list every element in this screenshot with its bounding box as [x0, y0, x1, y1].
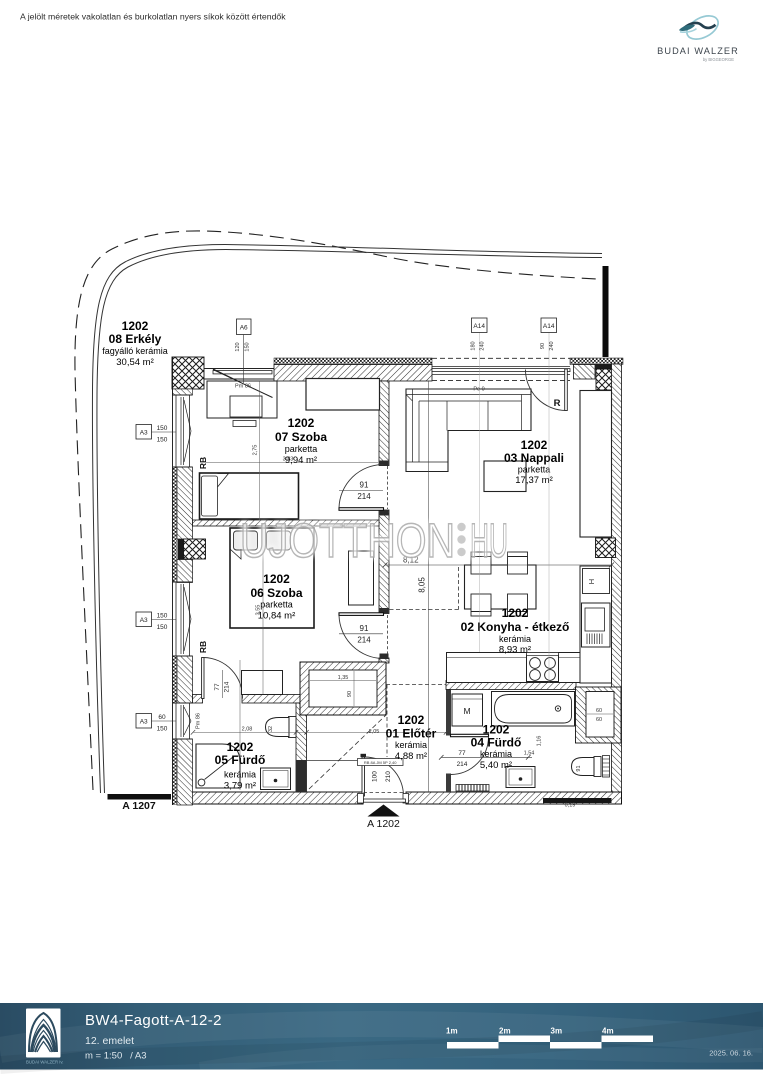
svg-text:kerámia: kerámia — [395, 740, 427, 750]
svg-text:A14: A14 — [473, 323, 485, 330]
svg-text:R: R — [554, 398, 561, 409]
svg-text:A jelölt méretek vakolatlan és: A jelölt méretek vakolatlan és burkolatl… — [20, 12, 286, 22]
svg-text:1202: 1202 — [288, 416, 315, 430]
svg-text:150: 150 — [245, 342, 251, 351]
svg-text:BUDAI WALZER: BUDAI WALZER — [657, 46, 739, 56]
svg-text:91: 91 — [360, 624, 369, 633]
svg-text:Pe 0: Pe 0 — [473, 387, 484, 393]
svg-text:77: 77 — [214, 683, 221, 691]
svg-text:1,16: 1,16 — [537, 736, 543, 747]
svg-text:4m: 4m — [602, 1027, 614, 1036]
svg-text:A3: A3 — [140, 719, 148, 726]
svg-text:214: 214 — [457, 761, 468, 768]
svg-text:m = 1:50 / A3: m = 1:50 / A3 — [85, 1051, 147, 1062]
svg-text:A14: A14 — [543, 323, 555, 330]
svg-text:180: 180 — [471, 341, 477, 350]
svg-text:1m: 1m — [446, 1027, 458, 1036]
svg-text:1202: 1202 — [521, 438, 548, 452]
svg-text:UJOTTHON: UJOTTHON — [240, 515, 455, 568]
svg-text:150: 150 — [157, 624, 168, 631]
svg-text:fagyálló kerámia: fagyálló kerámia — [102, 346, 168, 356]
svg-text:04 Fürdő: 04 Fürdő — [471, 736, 522, 750]
svg-text:parketta: parketta — [260, 600, 293, 610]
svg-text:60: 60 — [596, 708, 602, 714]
svg-text:100: 100 — [372, 771, 379, 782]
svg-text:Pm 86: Pm 86 — [235, 384, 251, 390]
svg-text:08 Erkély: 08 Erkély — [109, 332, 162, 346]
svg-text:32: 32 — [268, 726, 274, 732]
svg-text:9,94 m²: 9,94 m² — [285, 455, 317, 466]
svg-text:91: 91 — [576, 765, 582, 771]
svg-text:8,05: 8,05 — [418, 577, 427, 593]
svg-text:A3: A3 — [140, 617, 148, 624]
svg-text:17,37 m²: 17,37 m² — [515, 475, 553, 486]
svg-text:01 Előtér: 01 Előtér — [386, 727, 437, 741]
svg-text:06 Szoba: 06 Szoba — [250, 586, 302, 600]
svg-text:BUDAI WALZER Iv.: BUDAI WALZER Iv. — [26, 1060, 63, 1065]
svg-text:H: H — [587, 579, 596, 584]
svg-text:Pm 86: Pm 86 — [196, 713, 202, 729]
svg-text:240: 240 — [549, 341, 555, 350]
svg-text:1,35: 1,35 — [338, 675, 349, 681]
svg-text:M: M — [463, 706, 470, 716]
svg-text:RB: RB — [198, 641, 208, 653]
svg-text:60: 60 — [596, 717, 602, 723]
svg-text:214: 214 — [357, 492, 371, 501]
svg-text:RB 8A JM 5P 2,40: RB 8A JM 5P 2,40 — [364, 760, 397, 765]
svg-text:4,88 m²: 4,88 m² — [395, 751, 427, 762]
svg-text:parketta: parketta — [285, 444, 318, 454]
svg-text:2m: 2m — [499, 1027, 511, 1036]
svg-text:5,40 m²: 5,40 m² — [480, 760, 512, 771]
svg-text:A 1202: A 1202 — [367, 818, 400, 830]
svg-text:90: 90 — [347, 691, 353, 697]
svg-text:77: 77 — [458, 750, 466, 757]
svg-text:150: 150 — [157, 437, 168, 444]
svg-text:1202: 1202 — [263, 572, 290, 586]
svg-text:2,08: 2,08 — [242, 727, 253, 733]
svg-text:A 1207: A 1207 — [122, 800, 156, 812]
svg-text:02 Konyha - étkező: 02 Konyha - étkező — [461, 620, 570, 634]
svg-text:1202: 1202 — [122, 319, 149, 333]
svg-text:RB: RB — [198, 457, 208, 469]
svg-text:30,54 m²: 30,54 m² — [116, 357, 154, 368]
svg-text:150: 150 — [157, 726, 168, 733]
svg-text:210: 210 — [385, 771, 392, 782]
svg-text:A3: A3 — [140, 430, 148, 437]
svg-text:2,05: 2,05 — [369, 729, 380, 735]
svg-text:12. emelet: 12. emelet — [85, 1035, 134, 1047]
svg-text:by BIGGEORGE: by BIGGEORGE — [703, 57, 734, 62]
svg-text:60: 60 — [158, 714, 166, 721]
svg-text:07 Szoba: 07 Szoba — [275, 430, 327, 444]
svg-text:91: 91 — [360, 481, 369, 490]
svg-text:90: 90 — [540, 343, 546, 349]
svg-text:1,54: 1,54 — [524, 751, 535, 757]
svg-text:1202: 1202 — [502, 606, 529, 620]
svg-text:2,75: 2,75 — [253, 445, 259, 456]
svg-text:kerámia: kerámia — [499, 634, 531, 644]
svg-text:BW4-Fagott-A-12-2: BW4-Fagott-A-12-2 — [85, 1012, 222, 1029]
svg-text:parketta: parketta — [518, 465, 551, 475]
svg-text:150: 150 — [157, 425, 168, 432]
svg-text:A6: A6 — [240, 325, 248, 332]
svg-text:1202: 1202 — [398, 713, 425, 727]
svg-text:120: 120 — [235, 342, 241, 351]
svg-text:1202: 1202 — [483, 723, 510, 737]
svg-text:HU: HU — [470, 515, 508, 568]
svg-text:214: 214 — [357, 636, 371, 645]
svg-text:214: 214 — [224, 681, 231, 692]
svg-text:8,93 m²: 8,93 m² — [499, 645, 531, 656]
svg-text:03 Nappali: 03 Nappali — [504, 451, 564, 465]
svg-text:2025. 06. 16.: 2025. 06. 16. — [709, 1049, 753, 1058]
svg-text:150: 150 — [157, 613, 168, 620]
svg-text:0,19: 0,19 — [565, 803, 576, 809]
svg-text:10,84 m²: 10,84 m² — [258, 611, 296, 622]
svg-text:3m: 3m — [551, 1027, 563, 1036]
svg-text:240: 240 — [480, 341, 486, 350]
